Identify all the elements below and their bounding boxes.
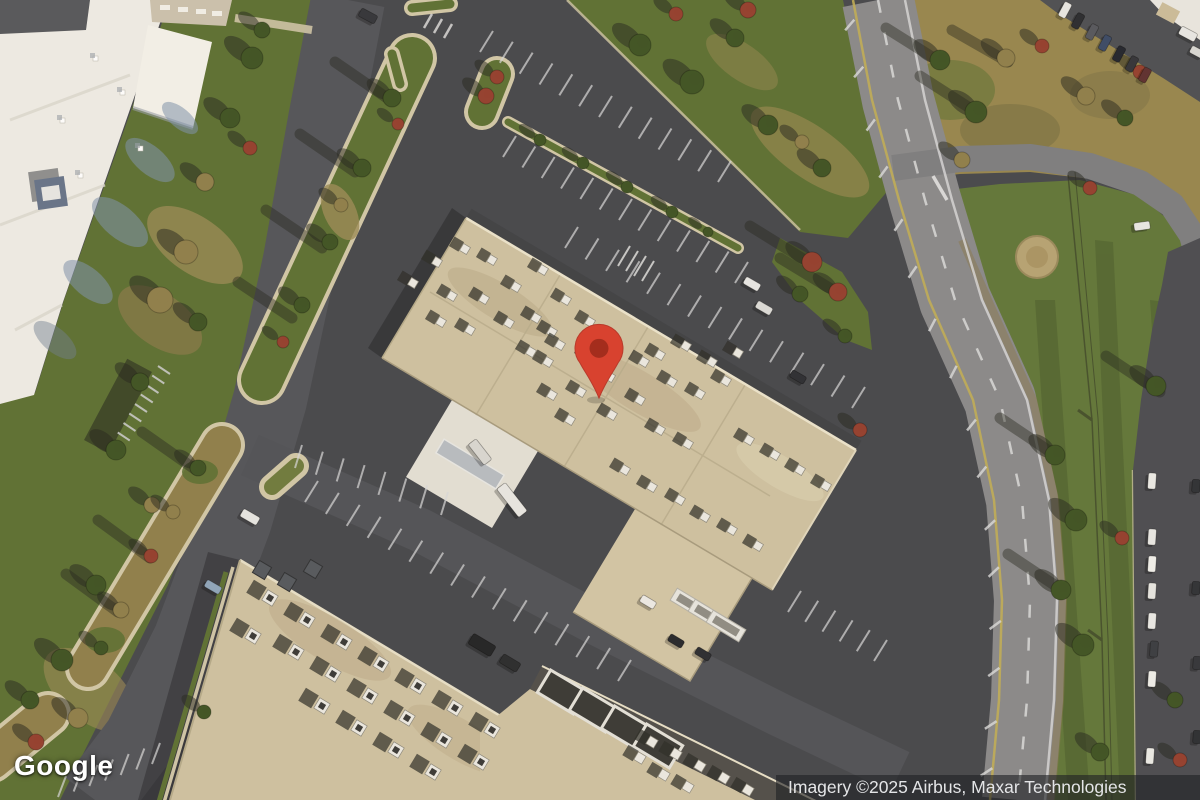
imagery-attribution: Imagery ©2025 Airbus, Maxar Technologies: [776, 775, 1200, 800]
satellite-map[interactable]: Google Imagery ©2025 Airbus, Maxar Techn…: [0, 0, 1200, 800]
google-logo[interactable]: Google: [14, 750, 113, 782]
satellite-imagery: [0, 0, 1200, 800]
